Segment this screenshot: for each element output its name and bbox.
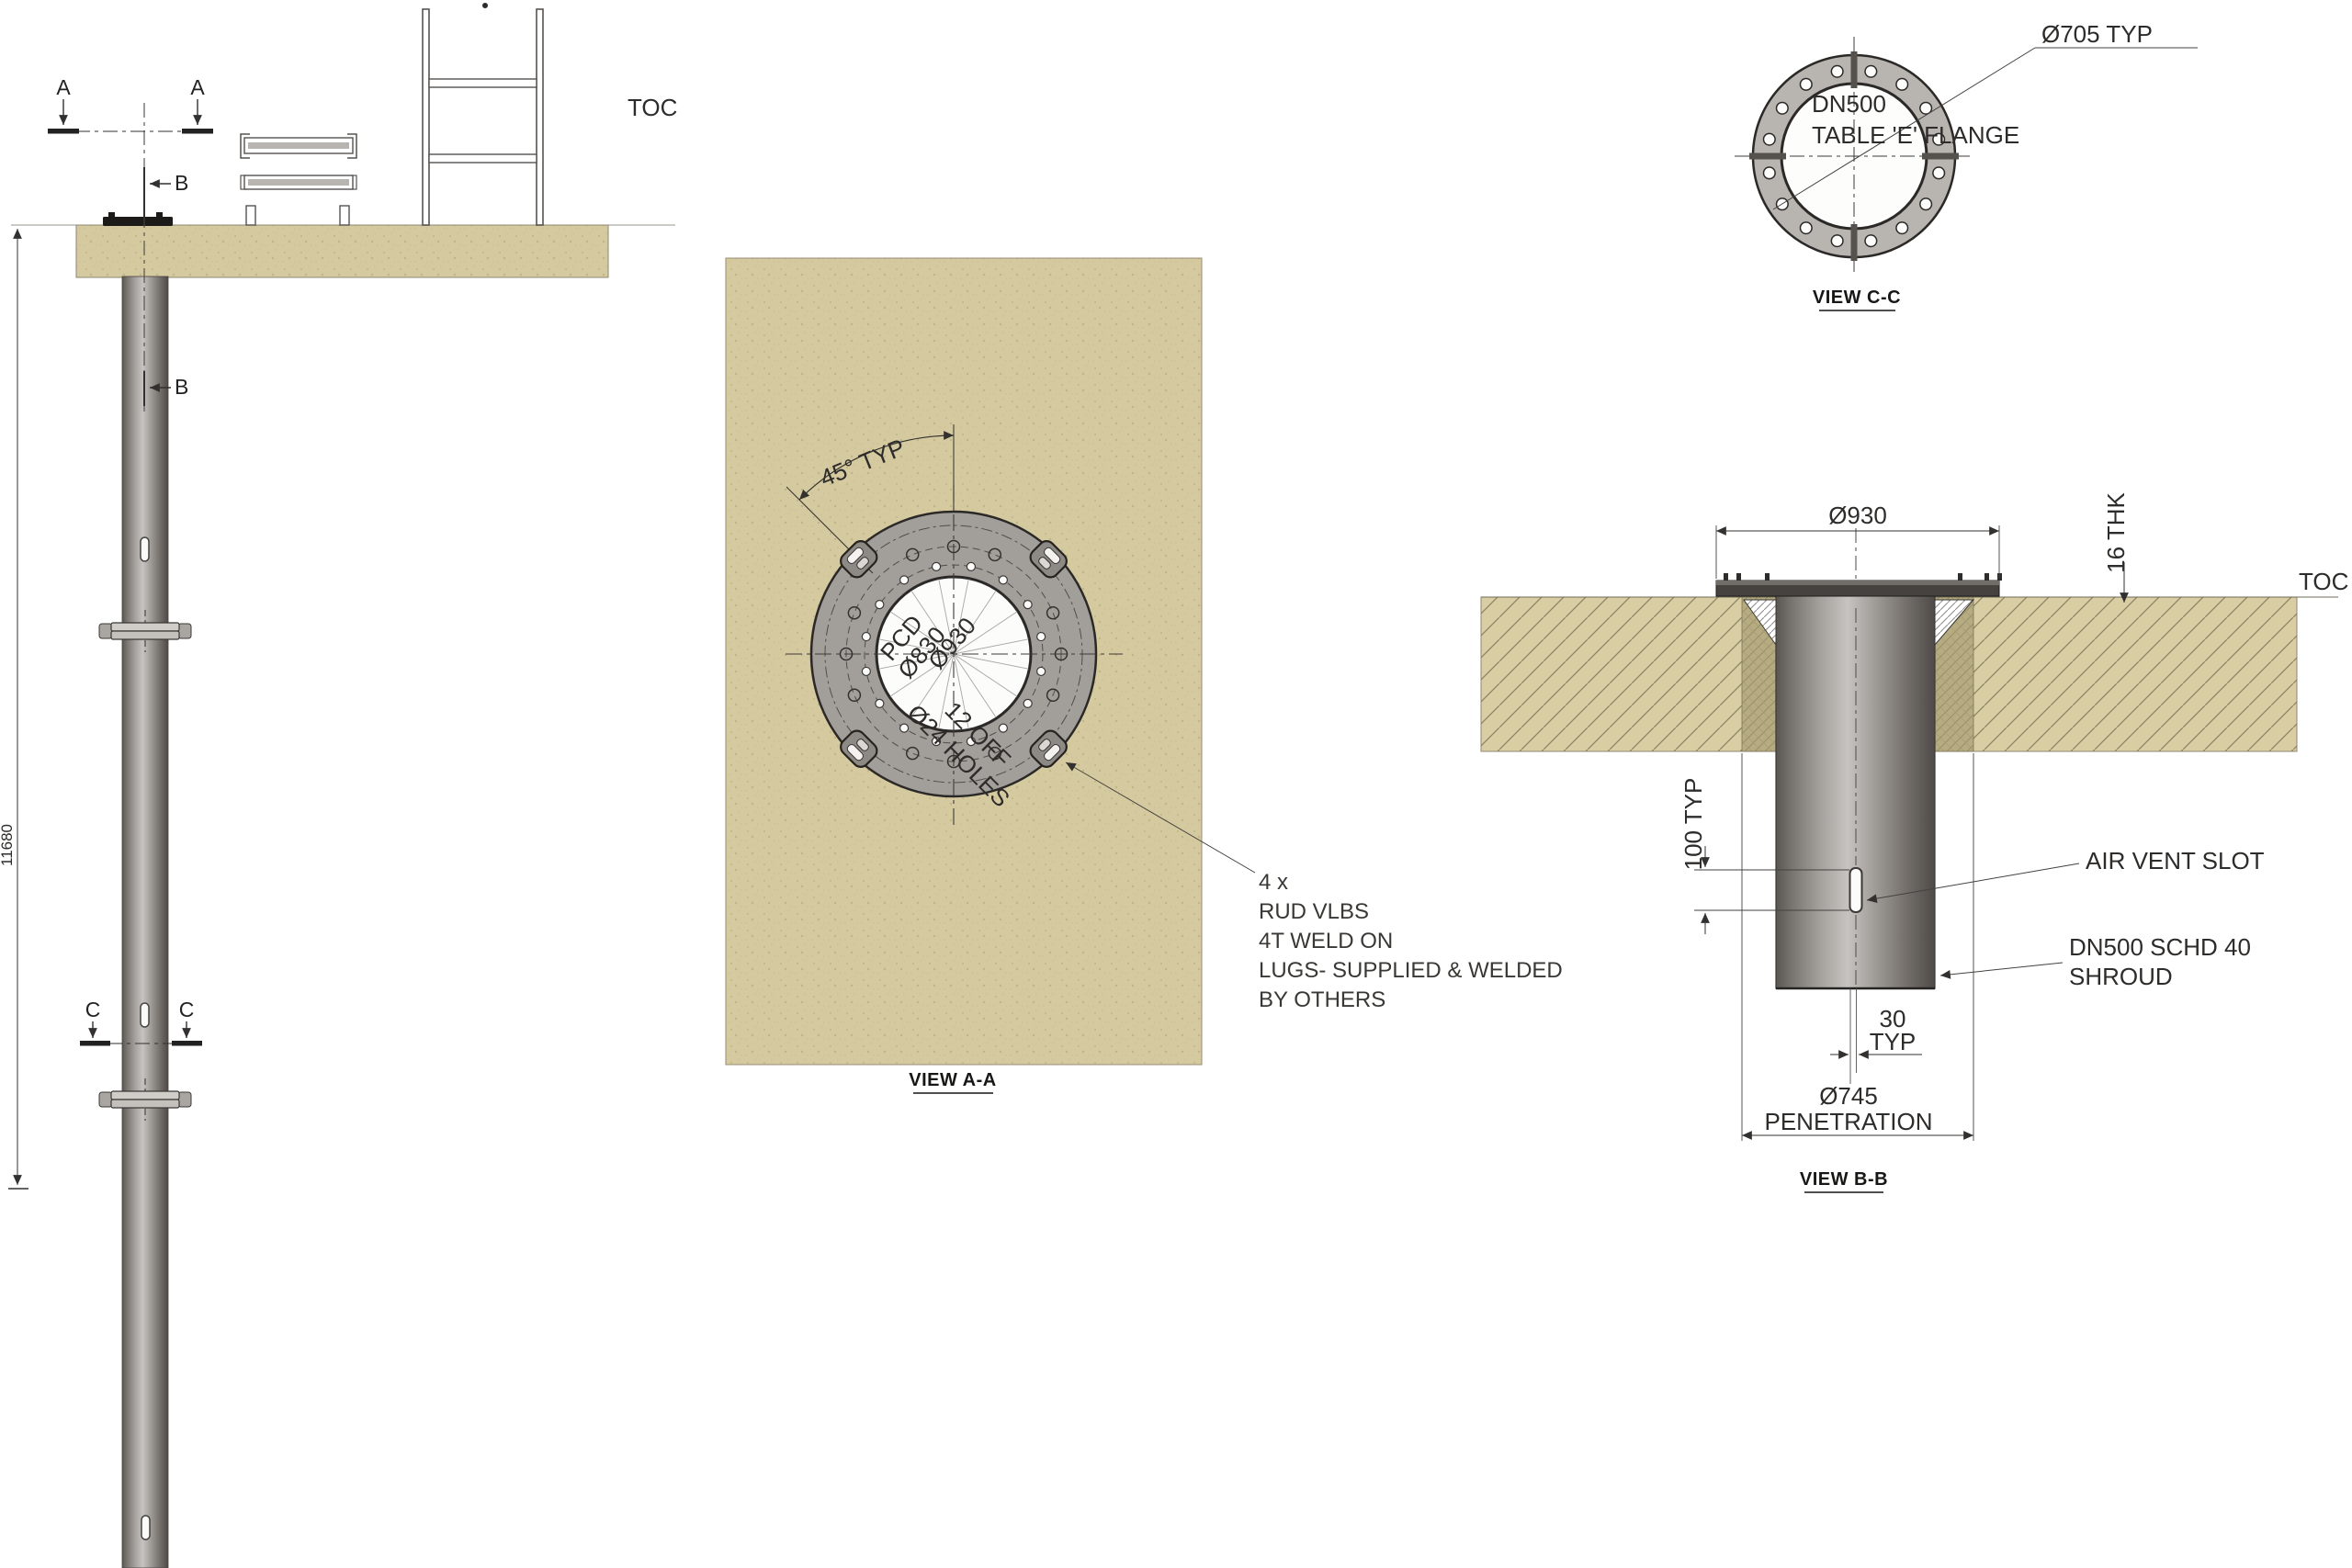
shroud-label-line1: DN500 SCHD 40	[2069, 933, 2251, 961]
toc-label: TOC	[628, 94, 677, 121]
vent-slot	[141, 1516, 150, 1540]
section-label-b: B	[175, 375, 188, 399]
pile-flange-joint	[99, 1078, 191, 1121]
plate-studs	[1724, 573, 2002, 581]
lug-note-line: 4T WELD ON	[1259, 929, 1393, 953]
thk-text: 16 THK	[2102, 492, 2130, 573]
quadrant-slot	[1851, 51, 1858, 88]
bolt-hole	[1865, 66, 1877, 78]
view-c-c: Ø705 TYP DN500 TABLE 'E' FLANGE VIEW C-C	[1735, 20, 2198, 310]
toc-label-bb: TOC	[2299, 568, 2348, 595]
hidden-bolt-hole	[1037, 633, 1046, 641]
bolt-hole	[1800, 222, 1812, 234]
section-label-b: B	[175, 171, 188, 195]
air-vent-slot	[1850, 868, 1862, 912]
dia930-text: Ø930	[1828, 502, 1887, 529]
concrete-slab	[76, 225, 608, 277]
vent-slot	[141, 537, 149, 561]
plate-thk-dimension: 16 THK	[2102, 492, 2130, 603]
hidden-bolt-hole	[900, 724, 909, 732]
pen-dim-line2: PENETRATION	[1765, 1108, 1933, 1135]
height-dim-text: 11680	[0, 824, 16, 866]
cc-dia-text: Ø705 TYP	[2041, 20, 2153, 48]
bolt-hole	[1831, 235, 1843, 247]
bolt-hole	[1831, 66, 1843, 78]
bolt-hole	[1764, 133, 1776, 145]
section-marker-a: A A	[48, 75, 213, 134]
lug-note-line: 4 x	[1259, 870, 1288, 895]
bolt-hole	[1777, 102, 1789, 114]
gap-dimension: 30 TYP	[1830, 988, 1922, 1084]
dia930-dimension: Ø930	[1716, 502, 1999, 579]
bolt-hole	[1920, 198, 1932, 210]
quadrant-slot	[1749, 153, 1786, 160]
bolt-hole	[1865, 235, 1877, 247]
drawing-sheet: A A B B TOC	[0, 0, 2352, 1568]
view-cc-caption: VIEW C-C	[1813, 288, 1901, 308]
flange-label-line2: TABLE 'E' FLANGE	[1812, 121, 2019, 149]
slot-dim-text: 100 TYP	[1679, 778, 1707, 871]
bolt-hole	[1896, 79, 1908, 91]
hidden-bolt-hole	[967, 562, 975, 570]
lug-note: 4 x RUD VLBS 4T WELD ON LUGS- SUPPLIED &…	[1259, 870, 1563, 1012]
bolt-hole	[1896, 222, 1908, 234]
hidden-bolt-hole	[1037, 667, 1046, 675]
hidden-bolt-hole	[1023, 601, 1032, 609]
pile-pipe	[122, 276, 168, 1568]
lug-note-line: LUGS- SUPPLIED & WELDED	[1259, 958, 1563, 983]
quadrant-slot	[1922, 153, 1959, 160]
hidden-bolt-hole	[900, 576, 909, 584]
view-a-a: 45° TYP PCD Ø830 Ø930 12 OFF Ø24 HOLES 4…	[726, 258, 1563, 1093]
bolt-hole	[1764, 167, 1776, 179]
shroud-leader	[1940, 963, 2063, 976]
hidden-bolt-hole	[1023, 699, 1032, 707]
anchor-plate	[103, 217, 173, 226]
bolt-hole	[1933, 167, 1945, 179]
section-label-a: A	[56, 75, 71, 99]
shroud-label-line2: SHROUD	[2069, 963, 2173, 990]
gap-dim-line2: TYP	[1870, 1028, 1917, 1055]
lug-note-line: BY OTHERS	[1259, 987, 1385, 1012]
pile-flange-joint	[99, 610, 191, 652]
quadrant-slot	[1851, 224, 1858, 261]
lug-note-line: RUD VLBS	[1259, 899, 1369, 924]
technical-drawing: A A B B TOC	[0, 0, 2352, 1568]
section-label-c: C	[85, 998, 101, 1021]
view-bb-caption: VIEW B-B	[1800, 1169, 1888, 1190]
hidden-bolt-hole	[876, 699, 884, 707]
air-vent-slot-label: AIR VENT SLOT	[2086, 847, 2265, 874]
elevation-view: A A B B TOC	[0, 3, 677, 1568]
steel-channels	[241, 134, 356, 225]
section-label-a: A	[190, 75, 205, 99]
hidden-bolt-hole	[862, 667, 870, 675]
hidden-bolt-hole	[999, 576, 1007, 584]
hidden-bolt-hole	[933, 562, 941, 570]
hidden-bolt-hole	[862, 633, 870, 641]
ladder-frame	[423, 3, 543, 225]
bolt-hole	[1800, 79, 1812, 91]
hidden-bolt-hole	[876, 601, 884, 609]
view-aa-caption: VIEW A-A	[909, 1070, 996, 1090]
height-dimension: 11680	[0, 229, 28, 1189]
flange-label-line1: DN500	[1812, 90, 1886, 118]
pen-dim-line1: Ø745	[1819, 1082, 1878, 1110]
hidden-bolt-hole	[999, 724, 1007, 732]
view-b-b: Ø930 16 THK TOC 100 TYP AIR VENT SLOT DN…	[1481, 492, 2348, 1192]
vent-slot	[141, 1003, 149, 1027]
section-label-c: C	[179, 998, 195, 1021]
